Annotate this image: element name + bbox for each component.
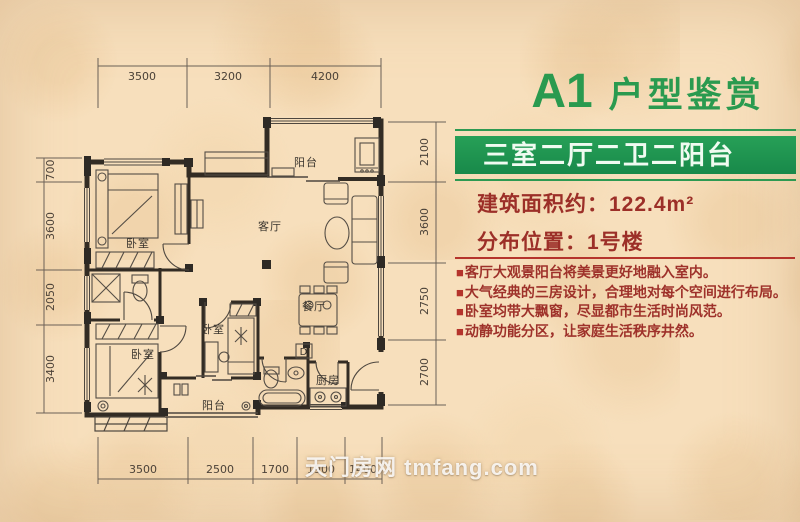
room-label-kitchen: 厨房 [316, 374, 340, 387]
feature-text: 客厅大观景阳台将美景更好地融入室内。 [465, 264, 717, 280]
feature-list: ■客厅大观景阳台将美景更好地融入室内。 ■大气经典的三房设计，合理地对每个空间进… [456, 263, 800, 341]
feature-text: 卧室均带大飘窗，尽显都市生活时尚风范。 [465, 303, 731, 319]
sofa-set [324, 183, 377, 283]
bullet-square-icon: ■ [456, 285, 464, 300]
watermark-en: tmfang.com [404, 455, 539, 480]
page-title: A1 户型鉴赏 [498, 64, 798, 119]
area-spec: 建筑面积约：122.4m² [477, 188, 694, 218]
bay-window [95, 417, 167, 431]
room-label-living: 客厅 [258, 219, 282, 233]
room-label-balcony-bottom: 阳台 [202, 398, 226, 412]
dim-left-1: 3600 [44, 212, 57, 240]
bed1-furniture [96, 170, 203, 268]
feature-text: 动静功能分区，让家庭生活秩序井然。 [465, 323, 703, 339]
dim-top-1: 3200 [214, 70, 242, 83]
balcony-railing [165, 413, 258, 417]
location-label: 分布位置： [477, 231, 587, 254]
bullet-square-icon: ■ [456, 324, 464, 339]
banner-top-rule [455, 129, 796, 131]
dim-right-3: 2700 [418, 358, 431, 386]
dim-right-2: 2750 [418, 287, 431, 315]
flyer-page: 3500 3200 4200 700 3600 2050 3400 2100 3… [0, 0, 800, 522]
feature-item: ■动静功能分区，让家庭生活秩序井然。 [456, 322, 800, 342]
dim-left-2: 2050 [44, 283, 57, 311]
feature-text: 大气经典的三房设计，合理地对每个空间进行布局。 [465, 284, 787, 300]
bullet-square-icon: ■ [456, 304, 464, 319]
dim-right-0: 2100 [418, 138, 431, 166]
watermark-cn: 天门房网 [305, 455, 397, 480]
room-label-dining: 餐厅 [302, 299, 326, 313]
furniture [92, 138, 379, 411]
area-value: 122.4m² [609, 193, 694, 216]
banner-label: 三室二厅二卫二阳台 [483, 140, 735, 170]
bed3-furniture [96, 324, 158, 411]
dim-left-3: 3400 [44, 355, 57, 383]
red-divider [455, 257, 795, 259]
room-label-bedroom-1: 卧室 [126, 236, 150, 250]
title-text: 户型鉴赏 [609, 67, 765, 118]
bathroom1-fixtures [92, 274, 148, 302]
room-label-bedroom-2: 卧室 [201, 322, 225, 336]
dim-bottom-2: 1700 [261, 463, 289, 476]
dim-top-0: 3500 [128, 70, 156, 83]
dim-top-2: 4200 [311, 70, 339, 83]
room-label-balcony-top: 阳台 [294, 155, 318, 169]
room-label-bedroom-3: 卧室 [131, 347, 155, 361]
bed2-furniture [205, 304, 256, 374]
area-label: 建筑面积约： [477, 193, 609, 216]
dim-bottom-1: 2500 [206, 463, 234, 476]
unit-code: A1 [531, 64, 592, 119]
unit-type-banner: 三室二厅二卫二阳台 [455, 136, 796, 174]
tv-cabinet [272, 138, 379, 176]
feature-item: ■大气经典的三房设计，合理地对每个空间进行布局。 [456, 283, 800, 303]
dim-left-0: 700 [44, 160, 57, 181]
location-value: 1号楼 [587, 231, 644, 254]
site-watermark: 天门房网 tmfang.com [305, 450, 539, 482]
feature-item: ■客厅大观景阳台将美景更好地融入室内。 [456, 263, 800, 283]
living-bay-window [205, 152, 268, 175]
location-spec: 分布位置：1号楼 [477, 226, 644, 256]
banner-bottom-rule [455, 179, 796, 181]
bathroom2-fixtures [259, 367, 305, 406]
window-cutouts [83, 117, 387, 412]
room-label-duct: D [300, 347, 309, 358]
feature-item: ■卧室均带大飘窗，尽显都市生活时尚风范。 [456, 302, 800, 322]
dim-right-1: 3600 [418, 208, 431, 236]
window-lines [85, 119, 384, 410]
dim-bottom-0: 3500 [129, 463, 157, 476]
bullet-square-icon: ■ [456, 265, 464, 280]
